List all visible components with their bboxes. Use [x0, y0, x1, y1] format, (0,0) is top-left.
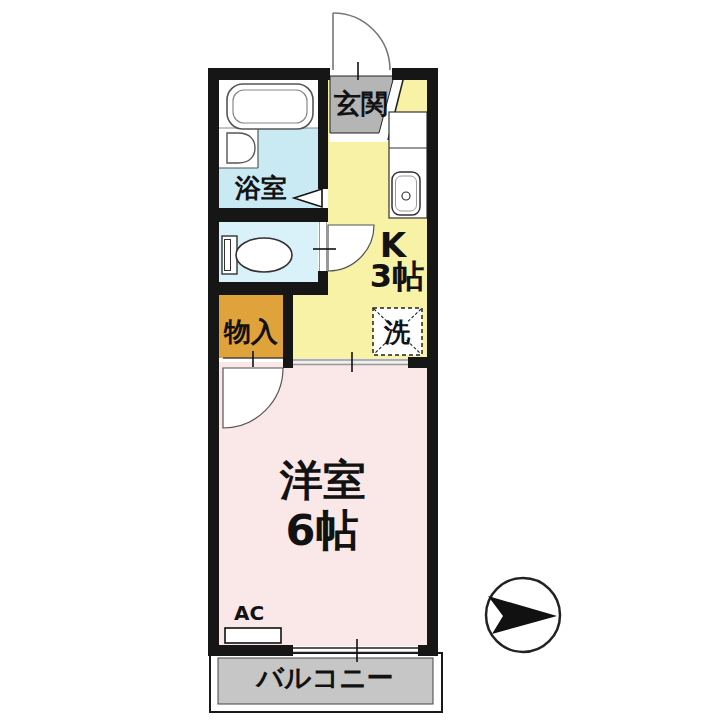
washbasin-icon: [227, 133, 255, 163]
western-room-label: 洋室: [279, 455, 366, 505]
wall-bottom-left: [208, 645, 293, 656]
wall-kitchen-room-right: [408, 357, 427, 368]
toilet-bowl-icon: [236, 238, 292, 272]
kitchen-size-label: 3帖: [370, 257, 424, 295]
ac-unit-box: [225, 628, 281, 643]
wall-top-left: [208, 68, 330, 80]
wall-toilet-right-lower: [318, 271, 328, 283]
sink-drain-icon: [402, 192, 410, 200]
wall-closet-right: [283, 295, 293, 368]
laundry-label: 洗: [383, 317, 411, 347]
wall-bath-toilet: [219, 208, 328, 222]
wall-toilet-bottom: [219, 282, 328, 295]
wall-bottom-right: [418, 645, 438, 656]
wall-bath-kitchen: [318, 80, 328, 189]
bathroom-label: 浴室: [234, 173, 287, 203]
floor-plan: 玄関 浴室 K 3帖 洗 物入 洋室 6帖 AC バルコニー: [0, 0, 720, 720]
wall-left: [208, 68, 219, 656]
closet-label: 物入: [223, 316, 279, 347]
wall-right: [427, 68, 438, 656]
balcony-label: バルコニー: [254, 662, 394, 693]
genkan-label: 玄関: [333, 88, 388, 119]
compass: [486, 578, 560, 652]
ac-label: AC: [234, 601, 264, 625]
western-room-size-label: 6帖: [286, 505, 359, 555]
